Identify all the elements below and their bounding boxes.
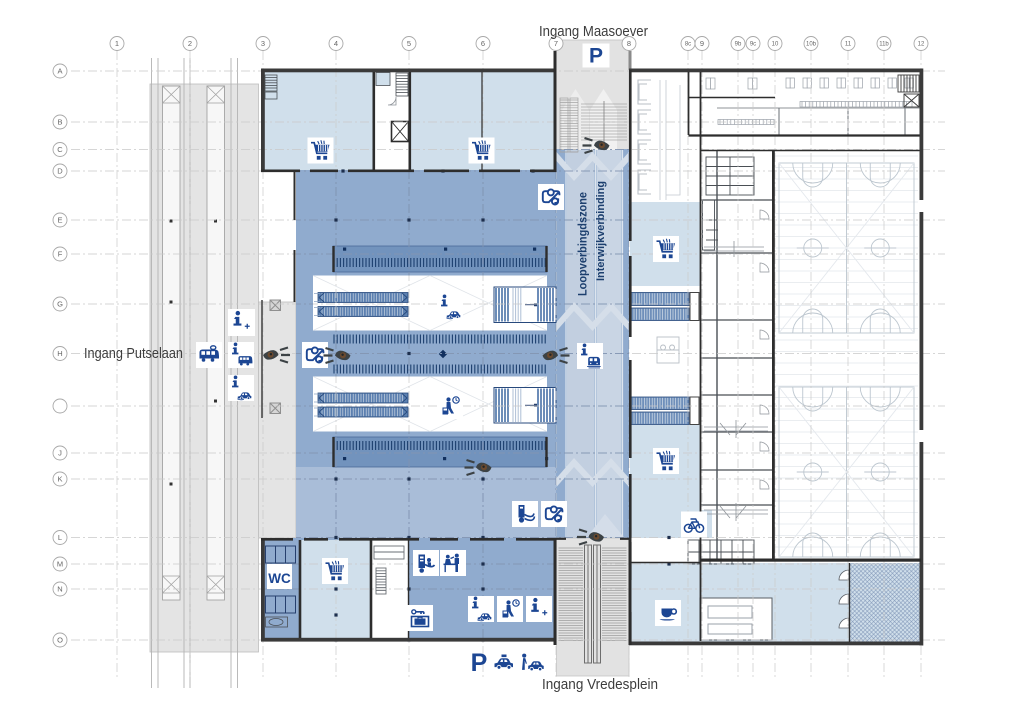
svg-text:1: 1 [115,39,119,48]
svg-text:M: M [57,560,63,569]
svg-text:G: G [57,300,63,309]
svg-text:C: C [57,145,63,154]
svg-text:E: E [57,216,62,225]
svg-text:Interwijkverbinding: Interwijkverbinding [595,181,607,281]
svg-text:2: 2 [188,39,192,48]
svg-text:B: B [57,118,62,127]
svg-text:K: K [57,475,62,484]
svg-text:Ingang Maasoever: Ingang Maasoever [539,24,648,40]
svg-text:J: J [58,449,62,458]
svg-text:4: 4 [334,39,338,48]
svg-text:7: 7 [554,39,558,48]
svg-text:9c: 9c [750,42,756,48]
svg-text:F: F [58,250,63,259]
svg-text:9b: 9b [735,42,742,48]
svg-text:9: 9 [700,39,704,48]
svg-text:12: 12 [918,42,925,48]
svg-text:P: P [471,649,488,677]
svg-text:H: H [57,349,62,358]
svg-text:11b: 11b [879,42,889,48]
svg-text:6: 6 [481,39,485,48]
svg-text:5: 5 [407,39,411,48]
svg-text:N: N [57,585,62,594]
svg-text:WC: WC [268,571,291,586]
svg-text:A: A [57,67,62,76]
svg-text:L: L [58,533,62,542]
svg-text:O: O [57,636,63,645]
svg-text:Ingang Vredesplein: Ingang Vredesplein [542,677,658,693]
svg-text:8c: 8c [685,42,691,48]
svg-text:P: P [589,45,603,68]
svg-text:10b: 10b [806,42,817,48]
svg-text:11: 11 [845,42,852,48]
svg-text:10: 10 [772,42,779,48]
svg-text:8: 8 [627,39,631,48]
svg-text:Ingang Putselaan: Ingang Putselaan [84,346,183,362]
svg-text:3: 3 [261,39,265,48]
svg-text:Loopverbingdszone: Loopverbingdszone [576,192,590,296]
svg-text:D: D [57,167,63,176]
